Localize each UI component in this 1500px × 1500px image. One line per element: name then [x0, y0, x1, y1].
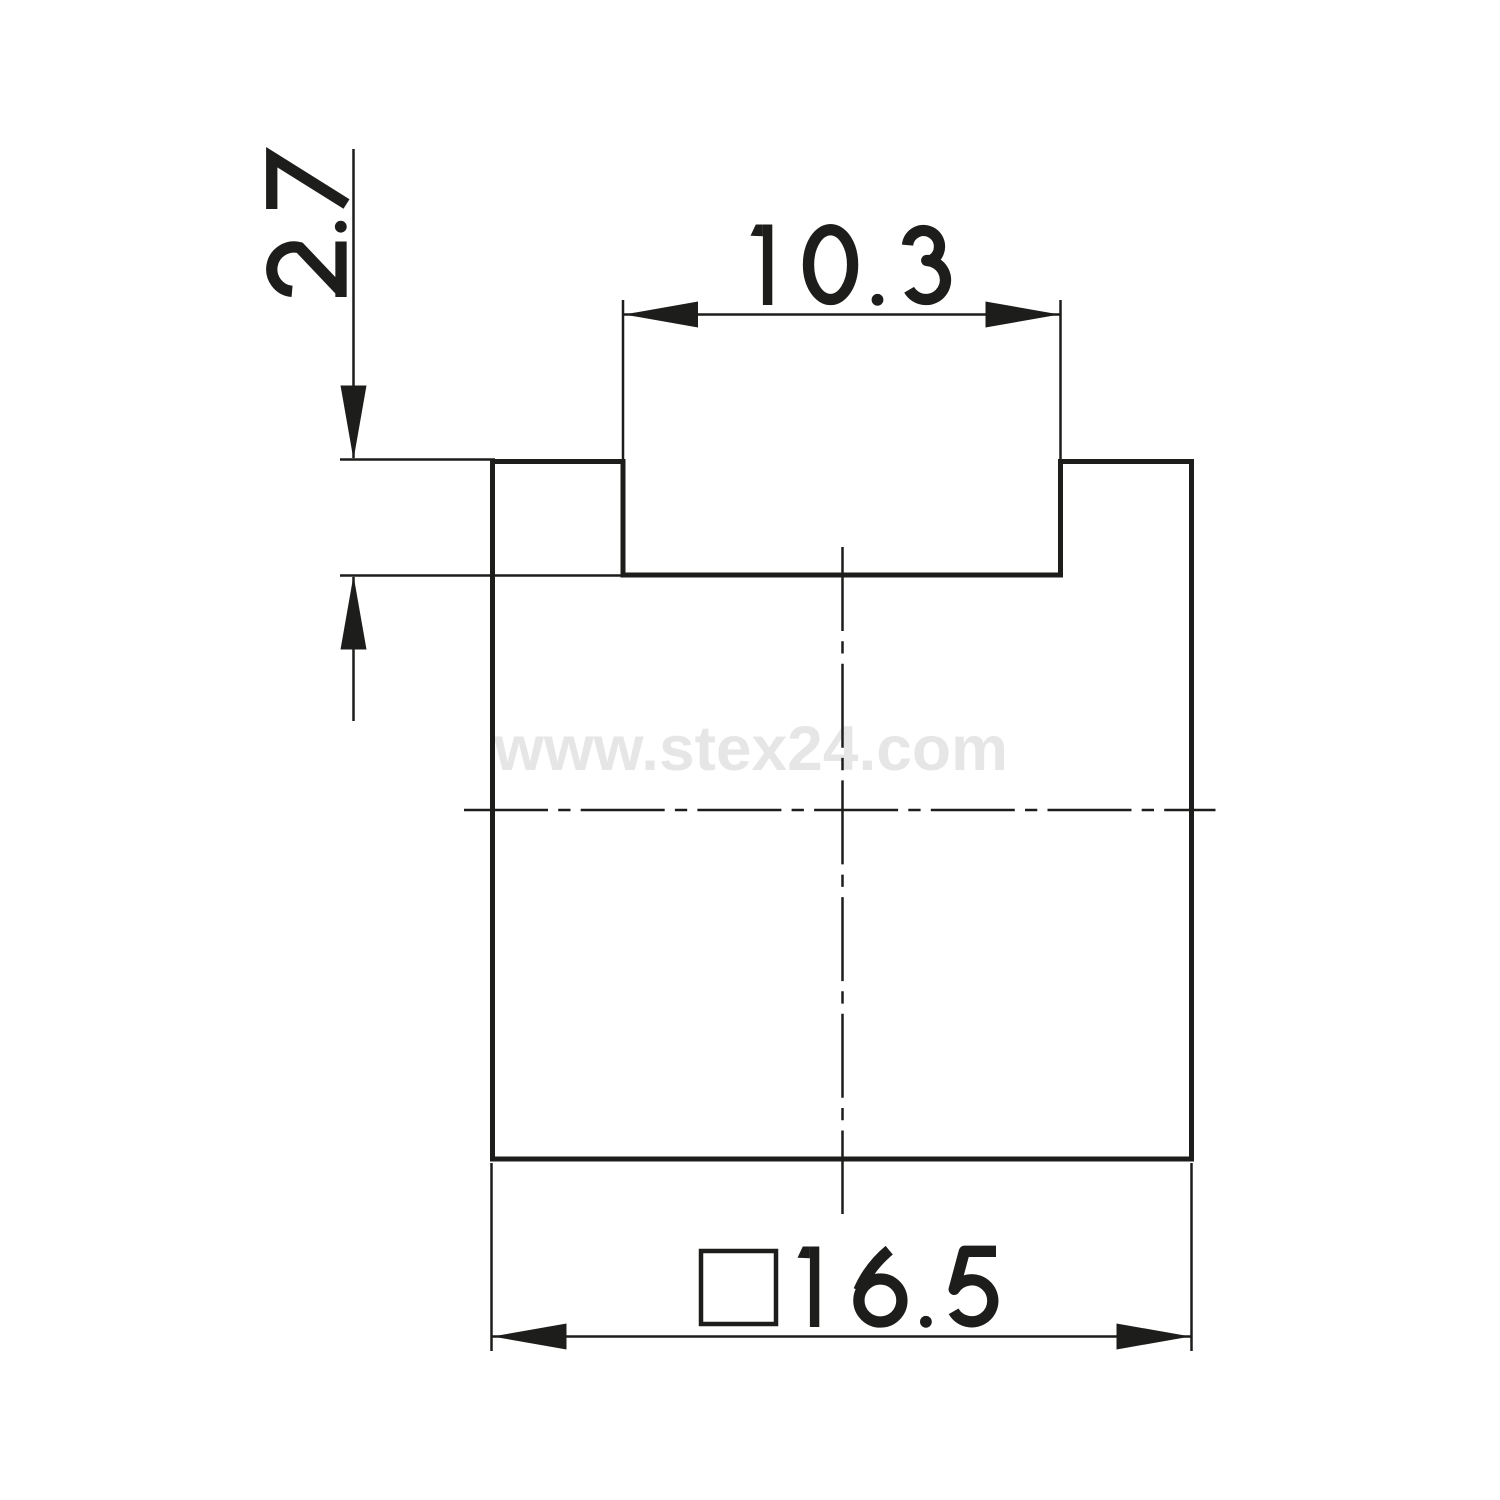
svg-text:www.stex24.com: www.stex24.com: [493, 714, 1008, 784]
